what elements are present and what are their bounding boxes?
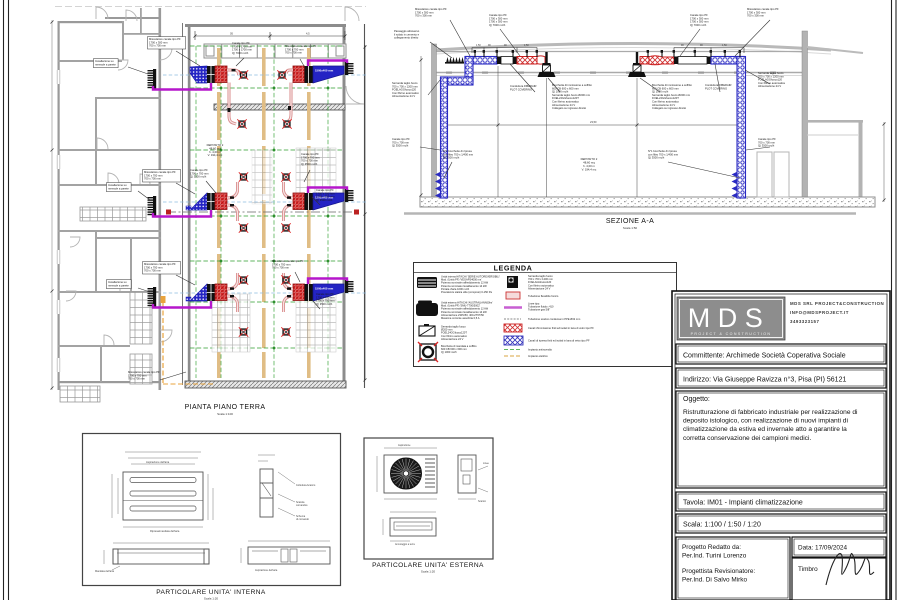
svg-text:PIANTA PIANO TERRA: PIANTA PIANO TERRA bbox=[185, 404, 266, 411]
svg-text:Scala 1:20: Scala 1:20 bbox=[421, 570, 436, 574]
svg-text:Canali di ripresa finiti ed is: Canali di ripresa finiti ed isolati in l… bbox=[528, 339, 590, 343]
svg-text:Data: 17/09/2024: Data: 17/09/2024 bbox=[798, 545, 847, 552]
svg-text:23,50: 23,50 bbox=[590, 120, 597, 124]
svg-text:LEGENDA: LEGENDA bbox=[494, 264, 533, 273]
svg-text:Tavola: IM01 - Impianti climat: Tavola: IM01 - Impianti climatizzazione bbox=[683, 500, 803, 507]
svg-text:Timbro: Timbro bbox=[798, 566, 818, 573]
svg-text:Per.Ind. Turini Lorenzo: Per.Ind. Turini Lorenzo bbox=[682, 553, 747, 560]
svg-text:Ancoraggio a terra: Ancoraggio a terra bbox=[395, 543, 415, 546]
svg-text:Scala 1:50: Scala 1:50 bbox=[623, 226, 638, 230]
svg-text:Scala: 1:100 / 1:50 / 1:20: Scala: 1:100 / 1:50 / 1:20 bbox=[683, 522, 761, 529]
svg-text:Canale tipo PF700 x 700 mmQ) 3: Canale tipo PF700 x 700 mmQ) 3500 mc/h bbox=[758, 137, 776, 148]
svg-text:Per.Ind. Di Salvo Mirko: Per.Ind. Di Salvo Mirko bbox=[682, 577, 747, 584]
svg-text:Canale tipo PF700 x 700 mmQ) 3: Canale tipo PF700 x 700 mmQ) 3500 mc/h bbox=[392, 137, 410, 148]
svg-text:1500x400 mm: 1500x400 mm bbox=[315, 287, 334, 291]
svg-text:1500x400 mm: 1500x400 mm bbox=[315, 69, 334, 73]
svg-text:Passaggio attraversoil solaio: Passaggio attraversoil solaio in cemento… bbox=[394, 29, 420, 40]
svg-text:Mandata dell'aria: Mandata dell'aria bbox=[95, 570, 115, 573]
svg-text:4,5: 4,5 bbox=[306, 32, 310, 36]
svg-text:Aspirazione: Aspirazione bbox=[398, 444, 411, 447]
svg-text:Indirizzo: Via Giuseppe Ravizz: Indirizzo: Via Giuseppe Ravizza n°3, Pis… bbox=[683, 376, 846, 384]
svg-text:Scarico: Scarico bbox=[478, 500, 487, 503]
svg-text:Progettista Revisionatore:: Progettista Revisionatore: bbox=[682, 568, 755, 575]
svg-text:INFO@MDSPROJECT.IT: INFO@MDSPROJECT.IT bbox=[790, 310, 849, 315]
svg-text:3493323157: 3493323157 bbox=[790, 319, 819, 324]
svg-text:Ripresa/mandata dell'aria: Ripresa/mandata dell'aria bbox=[150, 529, 180, 533]
svg-text:Aspirazione dell'aria: Aspirazione dell'aria bbox=[146, 460, 170, 464]
svg-text:PARTICOLARE UNITA' ESTERNA: PARTICOLARE UNITA' ESTERNA bbox=[372, 562, 484, 569]
svg-text:Canali d'immissione finiti ed: Canali d'immissione finiti ed isolati in… bbox=[528, 326, 594, 330]
svg-text:PROJECT & CONSTRUCTION: PROJECT & CONSTRUCTION bbox=[691, 332, 772, 336]
svg-text:Installazione sumensole a pare: Installazione sumensole a parete bbox=[108, 280, 129, 287]
svg-text:1,50: 1,50 bbox=[524, 44, 529, 47]
svg-text:MDS SRL PROJECT&CONSTRUCTION: MDS SRL PROJECT&CONSTRUCTION bbox=[790, 301, 884, 306]
svg-text:1,50: 1,50 bbox=[722, 44, 727, 47]
svg-text:Installazione sumensole a pare: Installazione sumensole a parete bbox=[108, 183, 129, 190]
svg-text:Linee: Linee bbox=[483, 462, 490, 465]
svg-text:Tubazione scarico condensa in: Tubazione scarico condensa in PPE Ø32 mm bbox=[528, 317, 580, 321]
svg-text:Impianto antincendio: Impianto antincendio bbox=[528, 348, 552, 352]
svg-text:Scala 1:20: Scala 1:20 bbox=[204, 597, 219, 600]
svg-text:Aspirazione dell'aria: Aspirazione dell'aria bbox=[255, 569, 278, 572]
svg-text:Progetto Redatto da:: Progetto Redatto da: bbox=[682, 544, 741, 551]
svg-text:SEZIONE A-A: SEZIONE A-A bbox=[606, 218, 654, 225]
svg-text:1,50: 1,50 bbox=[476, 44, 481, 47]
svg-text:MDS: MDS bbox=[688, 303, 771, 333]
svg-text:PARTICOLARE UNITA' INTERNA: PARTICOLARE UNITA' INTERNA bbox=[156, 589, 266, 596]
svg-text:Impianto elettrico: Impianto elettrico bbox=[528, 354, 548, 358]
svg-text:Collettore/scarico: Collettore/scarico bbox=[296, 484, 316, 487]
svg-text:Installazione sumensole a pare: Installazione sumensole a parete bbox=[95, 59, 116, 66]
svg-text:Scala 1:100: Scala 1:100 bbox=[217, 412, 233, 416]
svg-text:Committente: Archimede Società: Committente: Archimede Società Coperativ… bbox=[683, 353, 846, 360]
svg-text:Oggetto:: Oggetto: bbox=[683, 396, 710, 403]
svg-text:Tubazione flessibile fonico: Tubazione flessibile fonico bbox=[528, 294, 559, 298]
